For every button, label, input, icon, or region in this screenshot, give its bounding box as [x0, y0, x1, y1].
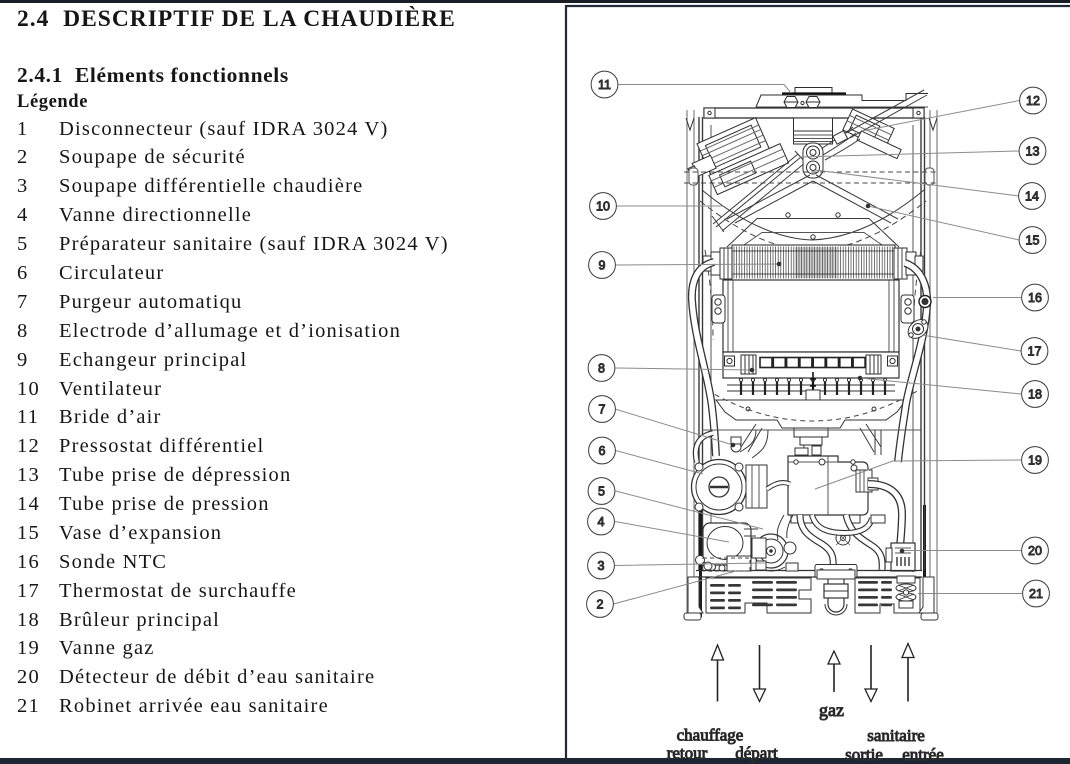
- svg-text:entrée: entrée: [902, 745, 944, 764]
- svg-text:2: 2: [597, 598, 604, 612]
- svg-text:8: 8: [598, 362, 605, 376]
- svg-text:14: 14: [1025, 190, 1039, 204]
- svg-text:19: 19: [1028, 454, 1042, 468]
- svg-text:16: 16: [1028, 291, 1042, 305]
- svg-text:chauffage: chauffage: [677, 726, 744, 745]
- svg-text:3: 3: [598, 559, 605, 573]
- svg-text:7: 7: [599, 403, 606, 417]
- svg-text:11: 11: [598, 78, 611, 92]
- svg-text:départ: départ: [735, 744, 778, 763]
- svg-text:17: 17: [1028, 345, 1042, 359]
- svg-text:13: 13: [1026, 145, 1040, 159]
- svg-text:6: 6: [599, 444, 606, 458]
- svg-text:12: 12: [1026, 94, 1040, 108]
- svg-text:21: 21: [1029, 587, 1043, 601]
- svg-text:4: 4: [598, 515, 605, 529]
- svg-text:5: 5: [598, 485, 605, 499]
- svg-text:18: 18: [1028, 388, 1042, 402]
- svg-text:15: 15: [1026, 234, 1040, 248]
- svg-text:20: 20: [1028, 544, 1042, 558]
- svg-text:sortie: sortie: [845, 745, 883, 764]
- svg-text:9: 9: [599, 259, 606, 273]
- svg-text:gaz: gaz: [819, 700, 844, 720]
- svg-text:sanitaire: sanitaire: [867, 726, 925, 745]
- svg-text:10: 10: [596, 200, 610, 214]
- svg-text:retour: retour: [667, 744, 708, 763]
